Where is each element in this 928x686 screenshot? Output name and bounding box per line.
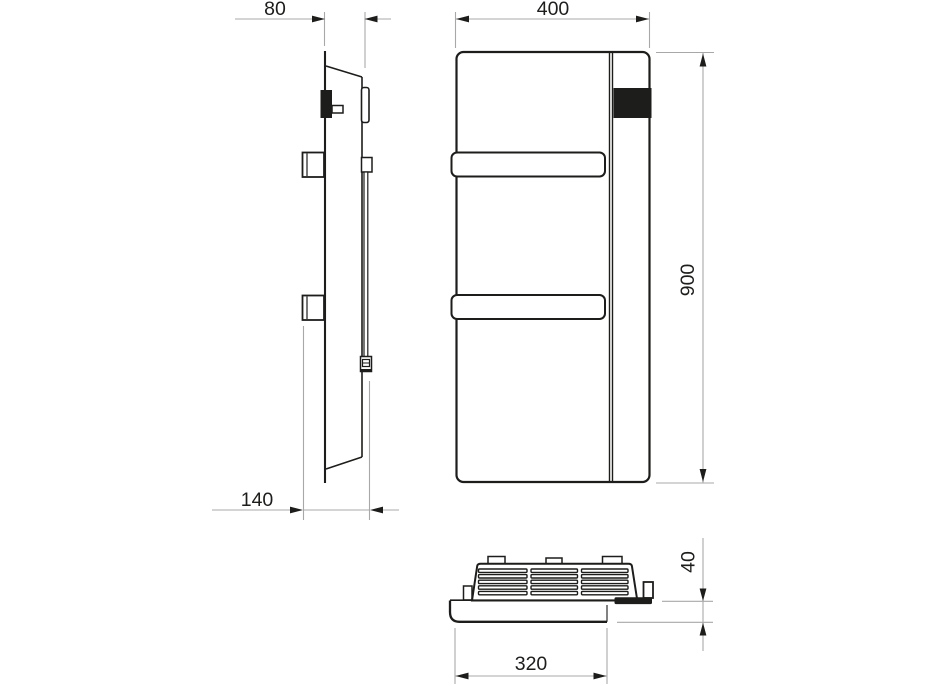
control-bar-bottom [615, 597, 653, 604]
panel-outline [450, 601, 607, 622]
rail-strip [364, 172, 368, 357]
side-view [303, 51, 373, 483]
dimension-label: 320 [515, 653, 548, 675]
side-bottom-slant [326, 457, 362, 469]
bottom-view [450, 557, 653, 622]
dimension-label: 40 [677, 551, 699, 573]
arrowhead-left-icon [365, 16, 378, 23]
louvre-group-1 [479, 569, 528, 595]
louvre-slat [582, 580, 629, 583]
arrowhead-left-icon [370, 507, 383, 514]
louvre-slat [582, 575, 629, 578]
arrowhead-left-icon [456, 16, 469, 23]
louvre-slat [582, 586, 629, 589]
arrowhead-up-icon [700, 54, 707, 67]
louvre-slat [582, 569, 629, 572]
control-panel-front [614, 88, 652, 118]
louvre-slat [531, 569, 578, 572]
dimension-depth-80: 80 [235, 0, 391, 68]
louvre-slat [531, 575, 578, 578]
louvre-slat [479, 580, 528, 583]
left-foot [464, 586, 473, 600]
towel-bar-front-top [452, 153, 606, 177]
dimension-width-400: 400 [456, 0, 650, 48]
louvre-slat [531, 586, 578, 589]
dimension-label: 80 [264, 0, 286, 20]
dimension-label: 400 [537, 0, 570, 20]
louvre-slat [479, 591, 528, 594]
front-bracket-tab [332, 106, 343, 114]
louvre-slat [479, 569, 528, 572]
arrowhead-right-icon [636, 16, 649, 23]
rail-bottom-cap [361, 369, 372, 372]
arrowhead-right-icon [312, 16, 325, 23]
control-panel-side [362, 88, 370, 123]
louvre-group-2 [531, 569, 578, 595]
front-view [452, 52, 652, 482]
towel-bar-side-top [303, 153, 325, 178]
dimension-height-900: 900 [656, 53, 714, 484]
towel-bar-side-bottom [303, 296, 325, 321]
arrowhead-down-icon [700, 469, 707, 482]
louvre-slat [582, 591, 629, 594]
front-bracket-black [321, 90, 333, 118]
rail-top-bracket [362, 158, 373, 173]
louvre-slat [479, 586, 528, 589]
louvre-slat [479, 575, 528, 578]
drawing-canvas: 80 400 900 140 320 [0, 0, 928, 686]
control-knob [644, 582, 654, 598]
technical-drawing: 80 400 900 140 320 [0, 0, 928, 686]
side-top-slant [326, 66, 362, 77]
louvre-slat [531, 580, 578, 583]
dimension-label: 900 [677, 264, 699, 297]
towel-bar-front-bottom [452, 295, 606, 319]
dimension-body-width-320: 320 [455, 628, 607, 684]
louvre-slat [531, 591, 578, 594]
arrowhead-up-icon [700, 623, 707, 636]
arrowhead-left-icon [456, 673, 469, 680]
dimension-wall-distance-140: 140 [212, 326, 399, 520]
louvre-group-3 [582, 569, 629, 595]
arrowhead-right-icon [594, 673, 607, 680]
arrowhead-right-icon [290, 507, 303, 514]
arrowhead-down-icon [700, 589, 707, 602]
dimension-label: 140 [241, 489, 274, 511]
